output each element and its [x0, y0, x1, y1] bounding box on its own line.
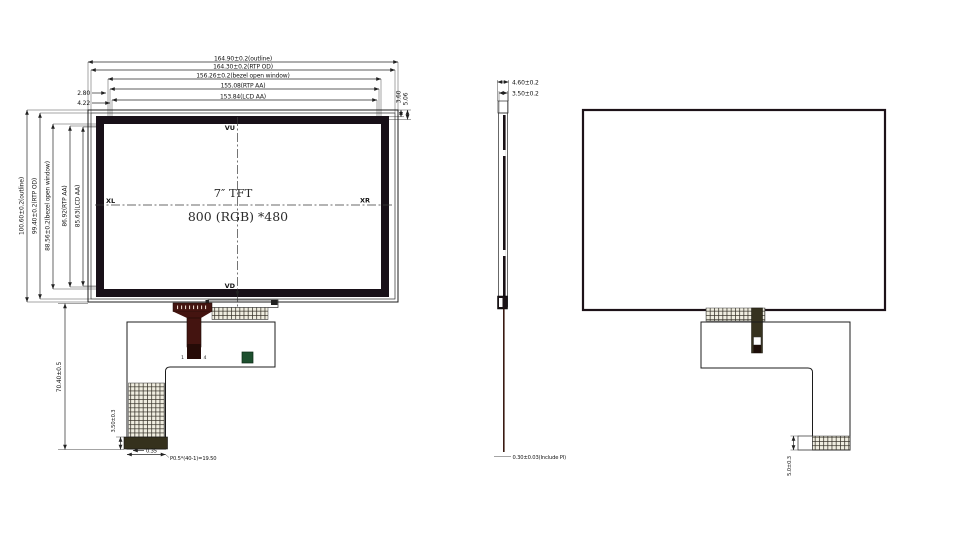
touch-tail-taper: [173, 312, 212, 319]
rear-view: 5.0±0.3: [583, 110, 885, 476]
rear-fpc-shoulder: [798, 436, 813, 450]
dim-label-total-thickness: 4.60±0.2: [512, 80, 539, 87]
dim-label-pitch: P0.5*(40-1)=19.50: [170, 456, 216, 462]
dim-label-280: 2.80: [77, 90, 90, 97]
dim-label-lcd-aa-width: 153.84(LCD AA): [220, 94, 266, 101]
connector-hatch-block: [212, 308, 268, 320]
side-fpc-line: [503, 309, 505, 452]
pitch-leader: [166, 455, 170, 458]
touch-tail-tip: [187, 344, 201, 359]
touch-tail-cap: [173, 303, 212, 312]
dim-label-fpc-thickness: 0.30±0.03(Include PI): [513, 455, 567, 461]
dim-label-rear-connector: 5.0±0.3: [787, 456, 793, 476]
screen-resolution-text: 800 (RGB) *480: [188, 209, 288, 224]
dim-label-outline-height: 100.60±0.2(outline): [19, 177, 26, 235]
dim-label-422: 4.22: [77, 100, 90, 107]
dim-label-bezel-window-width: 156.26±0.2(bezel open window): [196, 73, 289, 80]
dim-label-rtp-od-height: 99.40±0.2(RTP OD): [32, 178, 39, 234]
screen-size-text: 7″ TFT: [214, 186, 253, 200]
side-edge-gap-2: [503, 250, 506, 256]
rear-strip-window: [754, 337, 762, 345]
dim-label-rtp-aa-width: 155.08(RTP AA): [221, 83, 266, 90]
dim-label-lcd-aa-height: 85.63(LCD AA): [75, 185, 82, 227]
connector-housing: [208, 300, 278, 308]
pin-label-1: 1: [181, 355, 184, 361]
centerline-label-xl: XL: [106, 197, 115, 205]
dim-label-stiffener: 3.50±0.3: [111, 410, 117, 433]
dim-label-506: 5.06: [403, 92, 410, 105]
drawing-canvas: 164.90±0.2(outline) 164.30±0.2(RTP OD) 1…: [0, 0, 967, 559]
side-extension-lines: [498, 80, 509, 113]
rear-fpc-body: [701, 322, 850, 450]
lcd-module-outline-drawing: 164.90±0.2(outline) 164.30±0.2(RTP OD) 1…: [0, 0, 967, 559]
dim-label-rtp-od-width: 164.30±0.2(RTP OD): [213, 64, 273, 71]
fpc-contact-hatch: [129, 383, 165, 437]
rear-panel-rect: [583, 110, 885, 310]
dim-label-360: 3.60: [396, 90, 403, 103]
front-view: 164.90±0.2(outline) 164.30±0.2(RTP OD) 1…: [19, 56, 412, 463]
side-edge-gap-1: [503, 150, 506, 156]
touch-tail-stem: [187, 318, 201, 347]
centerline-label-vu: VU: [225, 124, 235, 132]
smd-component: [242, 352, 253, 363]
side-view: 4.60±0.2 3.50±0.2 0.30±0.03(Include PI): [494, 80, 566, 462]
dim-label-lcd-thickness: 3.50±0.2: [512, 91, 539, 98]
dim-label-fpc-length: 70.40±0.5: [56, 361, 63, 392]
touch-tail: 1 4: [173, 303, 212, 361]
dim-label-outline-width: 164.90±0.2(outline): [214, 56, 272, 63]
rear-strip-tip: [754, 345, 762, 353]
active-area: [104, 124, 381, 289]
centerline-label-xr: XR: [360, 197, 370, 205]
dim-label-bezel-window-height: 88.56±0.2(bezel open window): [45, 161, 52, 251]
dim-label-035: 0.35: [146, 449, 157, 455]
side-connector-notch: [499, 298, 503, 307]
pin-label-4: 4: [204, 355, 207, 361]
rear-fpc-contact-hatch: [813, 436, 851, 450]
centerline-label-vd: VD: [225, 282, 236, 290]
side-rtp-layer: [498, 101, 508, 113]
side-lcd-dark-edge: [503, 115, 506, 305]
fpc-stiffener: [124, 437, 168, 449]
connector-tab-right: [271, 300, 278, 305]
dim-label-rtp-aa-height: 86.92(RTP AA): [62, 185, 69, 226]
